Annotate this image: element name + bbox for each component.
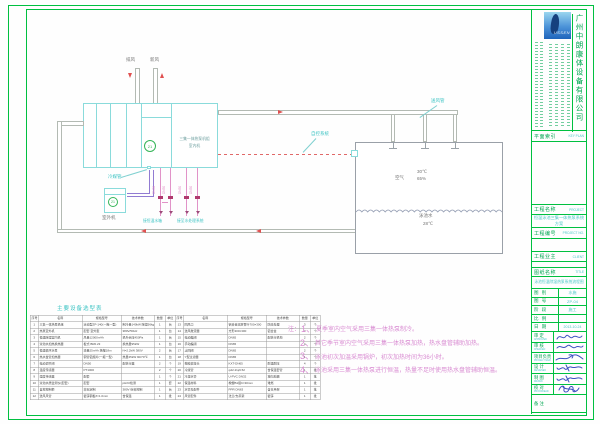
signature-row: 审 定APPROVED	[532, 332, 586, 343]
pipe-size-label: DN50	[162, 186, 166, 194]
table-cell: 镀锌	[266, 393, 299, 400]
drawing-sheet: 排风 新风 21 三集一体热泵机组 室内机 送风管 空气 30℃ 65% 泳池水…	[0, 0, 600, 424]
info-row: 日 期 2013-10-24	[532, 323, 586, 332]
table-cell: 1	[154, 393, 165, 400]
drawing-title-row: 图纸名称 TITLE	[532, 267, 586, 277]
exhaust-duct	[135, 68, 140, 104]
refrigerant-pipe	[149, 170, 150, 194]
table-cell: 12	[30, 393, 38, 400]
table-cell: 镀锌钢板δ=1.0mm	[82, 393, 121, 400]
drawing-title-en: TITLE	[575, 270, 584, 274]
ahu-indoor-unit-box	[83, 103, 218, 168]
return-flow-arrow	[141, 229, 146, 233]
logo-text: USSEN	[554, 30, 570, 35]
sign-en: PROOFREAD	[534, 391, 553, 393]
remark-label: 备 注	[534, 401, 553, 407]
table-cell: 含保温	[121, 393, 154, 400]
notes: 注：1、夏季室内空气采用三集一体热泵制冷。2、其它季节室内空气采用三集一体热泵加…	[288, 326, 526, 381]
equipment-table-wrap: 序号名称规格型号技术参数数量单位序号名称规格型号技术参数数量单位1三集一体热泵机…	[30, 315, 321, 400]
contact-microtext	[540, 42, 543, 128]
water-pipe	[160, 168, 161, 216]
info-value: 施工	[558, 306, 586, 314]
pipe-dest-right-label: 接至水处理系统	[177, 219, 204, 223]
diffuser	[389, 148, 397, 149]
project-no-en: PROJECT NO.	[563, 231, 584, 235]
supply-branch-duct	[423, 114, 427, 142]
refrigerant-pipe-label: 冷媒管	[108, 175, 122, 180]
equipment-tag-circle: 21	[144, 140, 156, 152]
project-name-row: 工程名称 PROJECT	[532, 204, 586, 215]
pool-water-label: 泳池水	[419, 214, 433, 219]
info-row: 图 号 ZP-04	[532, 298, 586, 307]
title-block: USSEN 广州中朗康体设备有限公司 平面索引 KEY PLAN 工程名称 PR…	[531, 10, 586, 414]
outdoor-unit-label: 室外机	[102, 216, 116, 221]
control-dashed-line	[218, 154, 352, 155]
key-plan-label: 平面索引	[534, 133, 556, 140]
equipment-table: 序号名称规格型号技术参数数量单位序号名称规格型号技术参数数量单位1三集一体热泵机…	[30, 315, 321, 400]
control-port-box	[351, 150, 358, 157]
diffuser	[451, 148, 459, 149]
company-name: 广州中朗康体设备有限公司	[572, 14, 585, 132]
water-line	[356, 201, 502, 207]
note-number: 2、	[300, 340, 314, 347]
table-row: 12送风风管镀锌钢板δ=1.0mm含保温1批24风管配件法兰/支吊架镀锌1批	[30, 393, 320, 400]
control-system-label: 自控系统	[311, 132, 329, 137]
note-text: 泳池初次加温采用锅炉，初次加热时间为36小时。	[315, 355, 448, 361]
key-plan-row: 平面索引 KEY PLAN	[532, 130, 586, 142]
contact-microtext	[549, 44, 552, 128]
signature-scribble	[554, 353, 586, 363]
pool-room-box	[355, 142, 503, 254]
note-line: 3、泳池初次加温采用锅炉，初次加热时间为36小时。	[300, 353, 526, 360]
note-line: 注：1、夏季室内空气采用三集一体热泵制冷。	[288, 326, 526, 333]
ahu-section-divider	[171, 104, 172, 167]
pool-air-label: 空气	[395, 176, 404, 181]
note-line: 4、泳池采用三集一体热泵进行恒温，热量不足时使用热水盘管辅助恒温。	[300, 367, 526, 374]
water-pipe	[197, 168, 198, 216]
pipe-flow-arrow	[185, 211, 189, 214]
ahu-section-divider	[96, 104, 97, 167]
sign-en: PROJECT MGR	[534, 360, 553, 362]
exhaust-air-label: 排风	[126, 58, 135, 63]
note-number: 3、	[300, 353, 314, 360]
return-duct-bottom	[57, 229, 356, 233]
sign-en: DESIGNED	[534, 370, 553, 372]
valve	[168, 196, 173, 199]
return-flow-arrow	[256, 229, 261, 233]
pool-air-temp: 30℃	[417, 170, 427, 175]
supply-flow-arrow	[278, 110, 283, 114]
signature-scribble	[554, 385, 586, 395]
project-name-en: PROJECT	[569, 208, 584, 212]
diffuser	[421, 148, 429, 149]
supply-branch-duct	[391, 114, 395, 142]
note-number: 1、	[301, 326, 315, 333]
project-no-label: 工程编号	[534, 230, 556, 237]
refrigerant-pipe	[127, 196, 154, 197]
note-prefix: 注：	[288, 327, 300, 333]
signature-scribble	[554, 374, 586, 384]
drawing-title-label: 图纸名称	[534, 269, 556, 276]
valve	[195, 196, 200, 199]
pipe-size-label: DN50	[189, 186, 193, 194]
refrigerant-connection	[147, 166, 151, 169]
pipe-flow-arrow	[196, 211, 200, 214]
note-text: 泳池采用三集一体热泵进行恒温，热量不足时使用热水盘管辅助恒温。	[315, 368, 501, 374]
signature-row: 制 图DRAWN	[532, 374, 586, 385]
contact-microtext	[567, 44, 570, 128]
info-label: 图 别	[532, 289, 558, 297]
table-cell: 1	[299, 393, 310, 400]
note-line: 2、其它季节室内空气采用三集一体热泵加热，热水盘管辅助加热。	[300, 340, 526, 347]
info-value	[558, 315, 586, 323]
info-value: 水施	[558, 289, 586, 297]
client-en: CLIENT	[573, 255, 584, 259]
table-cell: 批	[310, 393, 320, 400]
project-no-row: 工程编号 PROJECT NO.	[532, 228, 586, 239]
contact-microtext	[555, 44, 558, 128]
signature-scribble	[554, 343, 586, 353]
note-text: 夏季室内空气采用三集一体热泵制冷。	[316, 327, 418, 333]
signature-scribble	[554, 332, 586, 342]
contact-microtext	[561, 44, 564, 128]
pipe-flow-arrow	[159, 211, 163, 214]
info-row: 阶 段 施工	[532, 306, 586, 315]
drawing-title-value: 泳池恒温除湿热泵系统流程图	[532, 277, 586, 289]
table-cell: 法兰/支吊架	[227, 393, 266, 400]
supply-branch-duct	[453, 114, 457, 142]
ahu-label-line1: 三集一体热泵机组	[172, 137, 217, 141]
table-cell: 风管配件	[183, 393, 227, 400]
info-label: 日 期	[532, 323, 558, 331]
fresh-flow-arrow	[160, 73, 164, 78]
pipe-size-label: DN50	[152, 186, 156, 194]
equipment-table-title: 主要设备选型表	[57, 306, 103, 312]
pool-air-rh: 65%	[417, 177, 426, 182]
info-label: 比 例	[532, 315, 558, 323]
valve	[158, 196, 163, 199]
sign-en: DRAWN	[534, 381, 553, 383]
info-label: 图 号	[532, 298, 558, 306]
fresh-air-label: 新风	[150, 58, 159, 63]
exhaust-flow-arrow	[128, 73, 132, 78]
water-pipe	[170, 168, 171, 216]
info-row: 图 别 水施	[532, 289, 586, 298]
company-logo: USSEN	[544, 12, 571, 39]
water-pipe	[186, 168, 187, 216]
return-duct-riser	[57, 121, 62, 233]
key-plan-en: KEY PLAN	[568, 134, 584, 138]
client-row: 工程业主 CLIENT	[532, 251, 586, 262]
fresh-air-duct	[153, 68, 158, 104]
info-value: ZP-04	[558, 298, 586, 306]
outdoor-unit-line	[105, 194, 125, 195]
note-text: 其它季节室内空气采用三集一体热泵加热，热水盘管辅助加热。	[315, 341, 483, 347]
sign-en: CHECKED	[534, 349, 553, 351]
client-label: 工程业主	[534, 253, 556, 260]
pipe-size-label: DN50	[178, 186, 182, 194]
refrigerant-pipe	[127, 193, 150, 194]
ahu-section-divider	[110, 104, 111, 167]
signature-row: 设 计DESIGNED	[532, 364, 586, 375]
info-row: 比 例	[532, 315, 586, 324]
signature-row: 审 核CHECKED	[532, 343, 586, 354]
signature-scribble	[554, 364, 586, 374]
pipe-flow-arrow	[169, 211, 173, 214]
signature-row: 校 对PROOFREAD	[532, 385, 586, 396]
equipment-tag-circle: 21	[108, 197, 118, 207]
contact-microtext	[535, 42, 538, 128]
info-label: 阶 段	[532, 306, 558, 314]
sign-en: APPROVED	[534, 339, 553, 341]
remark-row: 备 注	[532, 395, 586, 413]
table-cell: 24	[175, 393, 183, 400]
supply-duct-label: 送风管	[431, 99, 445, 104]
ahu-plenum-line	[141, 117, 172, 118]
ahu-section-divider	[141, 104, 142, 167]
info-value: 2013-10-24	[558, 323, 586, 331]
table-cell: 批	[165, 393, 175, 400]
valve	[184, 196, 189, 199]
ahu-section-divider	[126, 104, 127, 167]
project-name-value: 恒温泳池三集一体热泵系统方案	[532, 215, 586, 228]
signature-row: 项目负责PROJECT MGR	[532, 353, 586, 364]
project-name-label: 工程名称	[534, 206, 556, 213]
table-cell: 送风风管	[38, 393, 82, 400]
pool-water-temp: 28℃	[423, 222, 433, 227]
ahu-label-line2: 室内机	[172, 144, 217, 148]
gauge-mark	[162, 202, 168, 203]
note-number: 4、	[300, 367, 314, 374]
pipe-dest-left-label: 接恒温水箱	[143, 219, 162, 223]
